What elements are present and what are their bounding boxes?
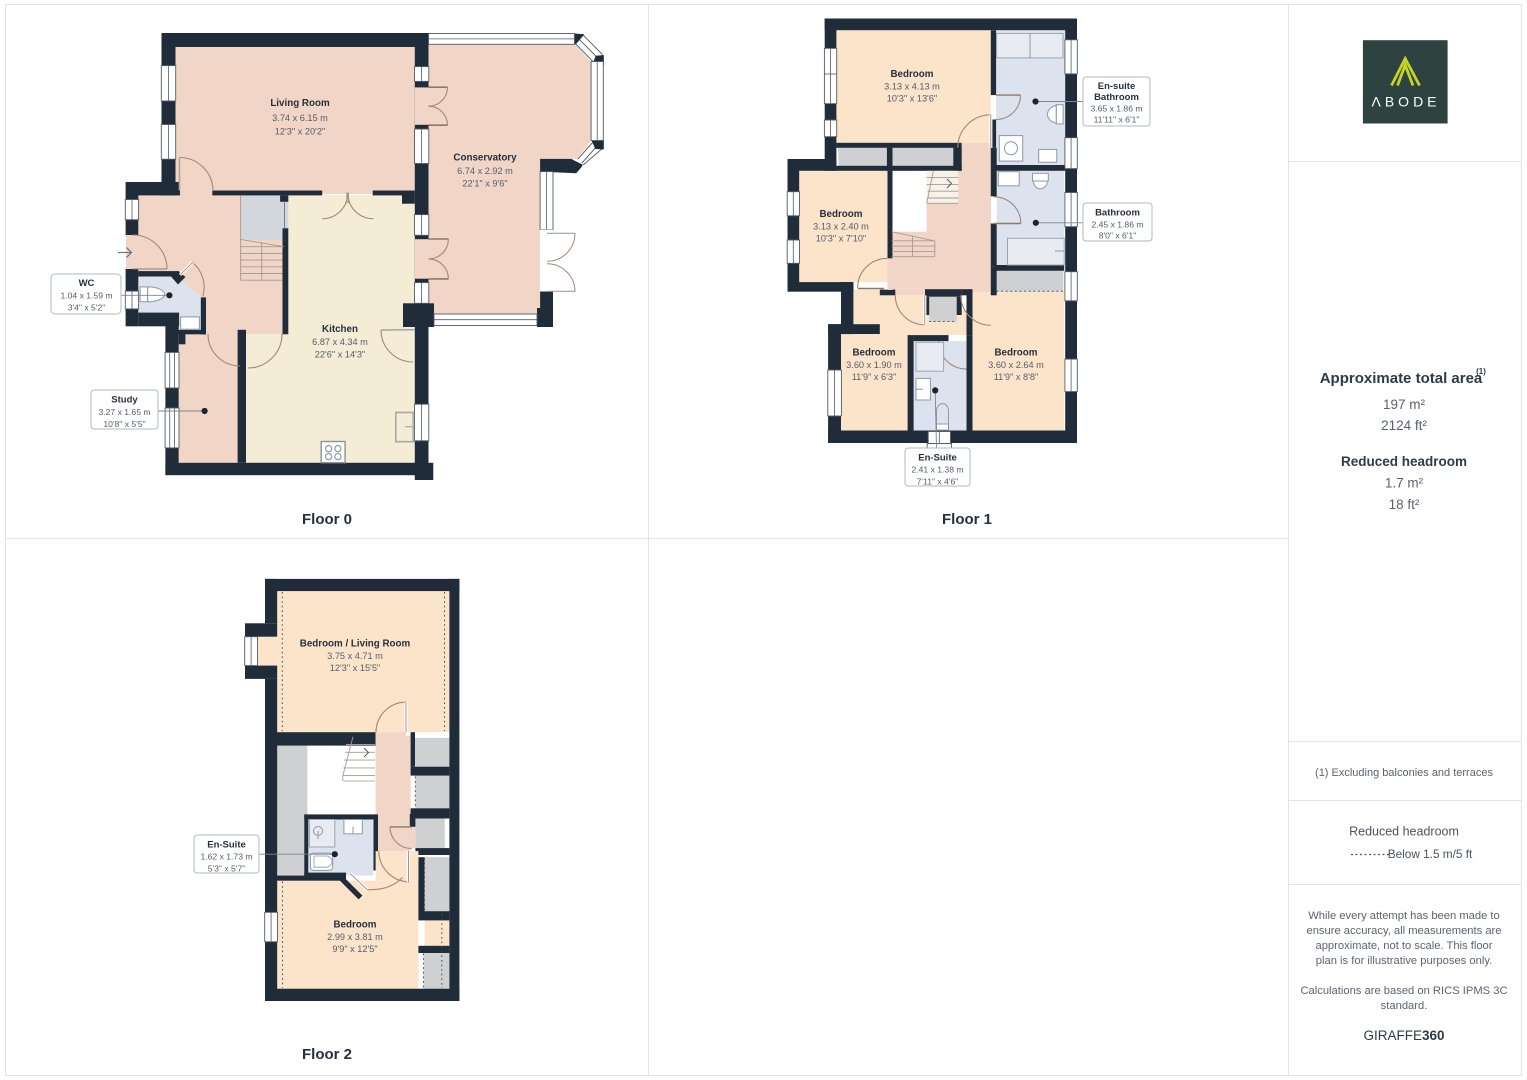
svg-text:ΛBODE: ΛBODE (1371, 94, 1440, 110)
svg-text:Bedroom: Bedroom (994, 348, 1037, 359)
svg-text:3.13 x 4.13 m: 3.13 x 4.13 m (884, 82, 940, 92)
svg-text:En-Suite: En-Suite (918, 453, 957, 464)
svg-text:3'4" x 5'2": 3'4" x 5'2" (68, 303, 106, 313)
svg-text:(1) Excluding balconies and te: (1) Excluding balconies and terraces (1315, 767, 1493, 779)
svg-text:Approximate total area: Approximate total area (1320, 370, 1483, 387)
svg-text:5'3" x 5'7": 5'3" x 5'7" (208, 864, 246, 874)
svg-text:22'1" x 9'6": 22'1" x 9'6" (462, 179, 507, 189)
svg-text:Calculations are based on RICS: Calculations are based on RICS IPMS 3C (1300, 985, 1507, 997)
svg-text:plan is for illustrative purpo: plan is for illustrative purposes only. (1316, 955, 1492, 967)
svg-text:1.62 x 1.73 m: 1.62 x 1.73 m (200, 852, 252, 862)
svg-text:Bedroom / Living Room: Bedroom / Living Room (300, 639, 411, 650)
svg-text:Floor 1: Floor 1 (942, 511, 992, 528)
svg-text:3.65 x 1.86 m: 3.65 x 1.86 m (1090, 104, 1142, 114)
svg-text:3.60 x 2.64 m: 3.60 x 2.64 m (988, 360, 1044, 370)
svg-text:Bathroom: Bathroom (1095, 208, 1140, 219)
svg-text:11'11" x 6'1": 11'11" x 6'1" (1094, 115, 1140, 125)
svg-text:12'3" x 20'2": 12'3" x 20'2" (275, 127, 325, 137)
svg-text:8'0" x 6'1": 8'0" x 6'1" (1099, 231, 1137, 241)
svg-text:11'9" x 6'3": 11'9" x 6'3" (852, 372, 897, 382)
svg-text:2124 ft²: 2124 ft² (1381, 418, 1427, 433)
svg-text:10'3" x 13'6": 10'3" x 13'6" (887, 94, 937, 104)
svg-text:3.60 x 1.90 m: 3.60 x 1.90 m (846, 360, 902, 370)
svg-text:Reduced headroom: Reduced headroom (1341, 454, 1467, 469)
svg-text:1.7 m²: 1.7 m² (1385, 476, 1424, 491)
svg-text:(1): (1) (1476, 367, 1486, 376)
svg-text:En-suite: En-suite (1098, 81, 1135, 92)
svg-text:2.45 x 1.86 m: 2.45 x 1.86 m (1091, 220, 1143, 230)
svg-text:Bedroom: Bedroom (852, 348, 895, 359)
svg-text:Bedroom: Bedroom (819, 209, 862, 220)
svg-text:While every attempt has been m: While every attempt has been made to (1308, 910, 1500, 922)
svg-text:Below 1.5 m/5 ft: Below 1.5 m/5 ft (1388, 847, 1473, 861)
svg-text:GIRAFFE360: GIRAFFE360 (1363, 1028, 1444, 1043)
svg-text:2.99 x 3.81 m: 2.99 x 3.81 m (327, 932, 383, 942)
svg-text:Bedroom: Bedroom (890, 69, 933, 80)
svg-text:3.13 x 2.40 m: 3.13 x 2.40 m (813, 222, 869, 232)
svg-text:10'8" x 5'5": 10'8" x 5'5" (103, 419, 145, 429)
svg-text:En-Suite: En-Suite (207, 840, 246, 851)
svg-text:12'3" x 15'5": 12'3" x 15'5" (330, 663, 380, 673)
svg-text:Floor 0: Floor 0 (302, 511, 352, 528)
svg-text:18 ft²: 18 ft² (1389, 497, 1420, 512)
svg-text:approximate, not to scale. Thi: approximate, not to scale. This floor (1315, 940, 1492, 952)
svg-text:Bedroom: Bedroom (333, 920, 376, 931)
svg-text:Conservatory: Conservatory (453, 153, 517, 164)
svg-text:WC: WC (79, 278, 95, 289)
svg-text:3.75 x 4.71 m: 3.75 x 4.71 m (327, 651, 383, 661)
svg-text:197 m²: 197 m² (1383, 397, 1426, 412)
svg-text:2.41 x 1.38 m: 2.41 x 1.38 m (911, 465, 963, 475)
svg-text:10'3" x 7'10": 10'3" x 7'10" (816, 234, 866, 244)
svg-text:Kitchen: Kitchen (322, 324, 358, 335)
svg-text:6.74 x 2.92 m: 6.74 x 2.92 m (457, 166, 513, 176)
svg-text:11'9" x 8'8": 11'9" x 8'8" (994, 372, 1039, 382)
svg-text:1.04 x 1.59 m: 1.04 x 1.59 m (60, 291, 112, 301)
svg-text:Floor 2: Floor 2 (302, 1046, 352, 1063)
svg-text:6.87 x 4.34 m: 6.87 x 4.34 m (312, 337, 368, 347)
svg-text:7'11" x 4'6": 7'11" x 4'6" (917, 477, 959, 487)
svg-text:Bathroom: Bathroom (1094, 92, 1139, 103)
svg-text:standard.: standard. (1381, 1000, 1428, 1012)
svg-text:9'9" x 12'5": 9'9" x 12'5" (332, 944, 377, 954)
svg-text:Reduced headroom: Reduced headroom (1349, 825, 1459, 839)
svg-text:3.74 x 6.15 m: 3.74 x 6.15 m (272, 113, 328, 123)
svg-text:Living Room: Living Room (270, 98, 330, 109)
svg-text:22'6" x 14'3": 22'6" x 14'3" (315, 350, 365, 360)
svg-text:3.27 x 1.65 m: 3.27 x 1.65 m (98, 407, 150, 417)
svg-text:ensure accuracy, all measureme: ensure accuracy, all measurements are (1306, 925, 1501, 937)
svg-text:Study: Study (111, 395, 138, 406)
